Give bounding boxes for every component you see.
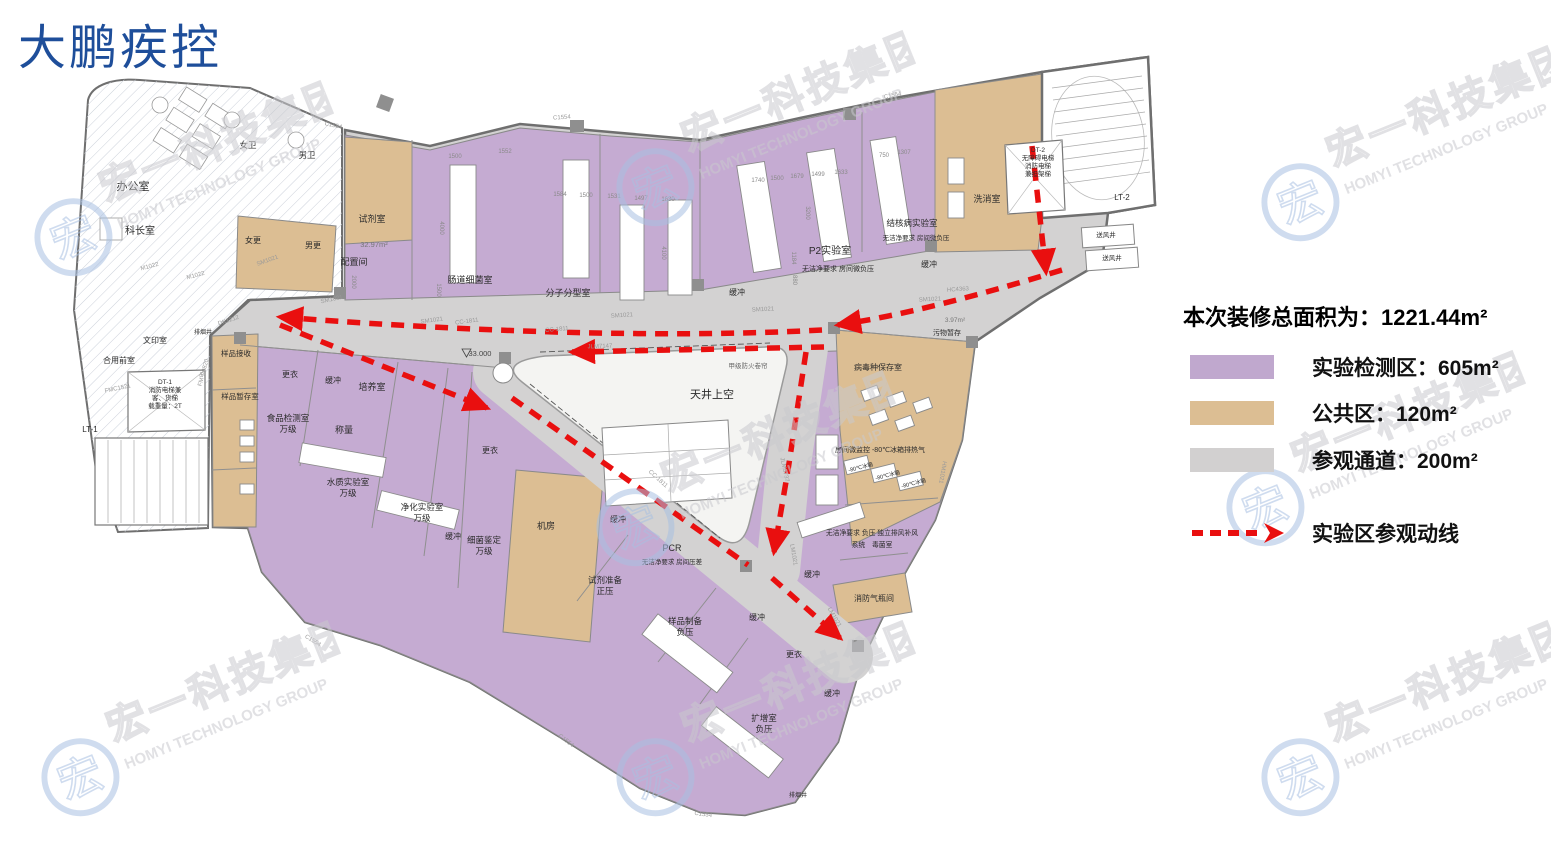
legend-total-value: 1221.44m²: [1381, 305, 1487, 330]
legend-item-route: 实验区参观动线: [1190, 518, 1459, 548]
public-reagent-room: [345, 137, 412, 244]
legend-swatch-public: [1190, 401, 1274, 425]
legend-item-corridor: 参观通道：200m²: [1190, 445, 1478, 475]
page-title: 大鹏疾控: [18, 8, 222, 78]
watermark: 宏宏一科技集团HOMYI TECHNOLOGY GROUP: [1231, 593, 1551, 845]
legend: 本次装修总面积为：1221.44m² 实验检测区：605m² 公共区：120m²…: [1183, 300, 1543, 332]
watermark-cn-text: 宏一科技集团: [1321, 36, 1551, 176]
route-arrow-icon: [1190, 521, 1286, 545]
watermark-cn-text: 宏一科技集团: [1321, 611, 1551, 751]
public-machine-room: [503, 470, 603, 642]
wall-tag: C1554: [553, 114, 572, 121]
legend-swatch-lab: [1190, 355, 1274, 379]
wall-tag: C1554: [303, 634, 322, 649]
legend-item-public: 公共区：120m²: [1190, 398, 1457, 428]
air-shafts: [1081, 224, 1138, 271]
atrium-core: [602, 420, 732, 506]
legend-label-corridor: 参观通道：200m²: [1312, 445, 1478, 475]
public-changing-block: [236, 216, 336, 292]
slide: { "title": "大鹏疾控", "watermark": { "cn": …: [0, 0, 1551, 845]
legend-label-route: 实验区参观动线: [1312, 518, 1459, 548]
stairwell-lt1: [95, 438, 208, 525]
homyi-logo-icon: 宏: [1271, 748, 1330, 810]
legend-total: 本次装修总面积为：1221.44m²: [1183, 300, 1543, 332]
elevator-dt1: [128, 370, 205, 432]
legend-label-lab: 实验检测区：605m²: [1312, 352, 1499, 382]
watermark: 宏宏一科技集团HOMYI TECHNOLOGY GROUP: [1231, 18, 1551, 271]
public-sample-strip: [212, 334, 258, 527]
legend-item-lab: 实验检测区：605m²: [1190, 352, 1499, 382]
homyi-logo-icon: 宏: [1271, 173, 1330, 235]
legend-swatch-corridor: [1190, 448, 1274, 472]
legend-label-public: 公共区：120m²: [1312, 398, 1457, 428]
column-circle: [493, 363, 513, 383]
watermark-en-text: HOMYI TECHNOLOGY GROUP: [1342, 675, 1551, 772]
floor-plan: 办公室科长室女卫男卫文印室合用前室DT-1消防电梯兼客、货梯载重量：2TLT-1…: [0, 0, 1180, 845]
legend-total-label: 本次装修总面积为：: [1183, 305, 1381, 330]
watermark-en-text: HOMYI TECHNOLOGY GROUP: [1342, 100, 1551, 197]
